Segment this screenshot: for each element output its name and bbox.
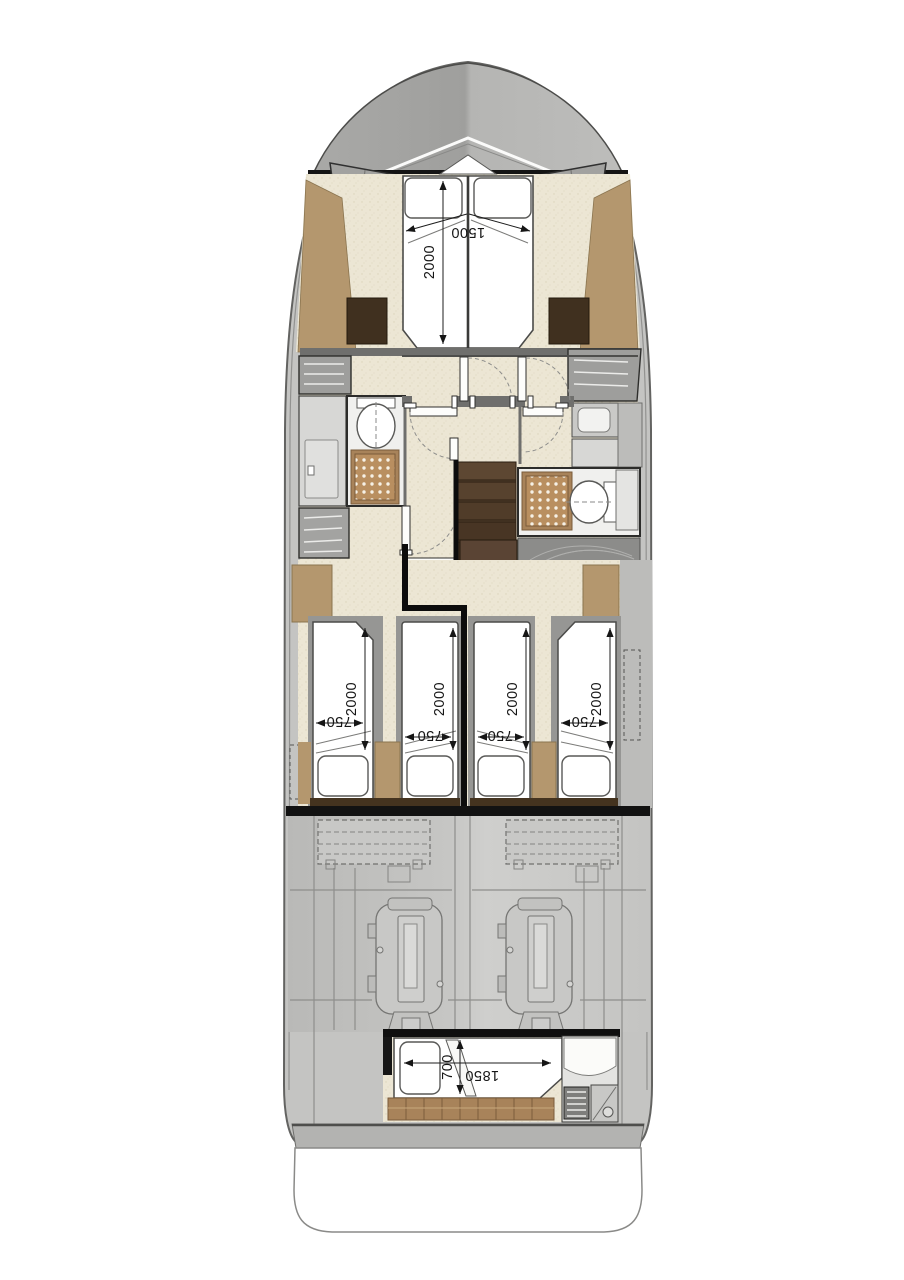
pillow-port [405, 178, 462, 218]
guest-bed-4-length-label: 2000 [589, 682, 605, 716]
port-bathroom [347, 396, 405, 506]
floor-plan-drawing: 1500 2000 [0, 0, 904, 1280]
starboard-bathroom [518, 468, 640, 536]
nightstand-port [347, 298, 387, 344]
crew-cabin: 700 1850 [383, 1029, 620, 1122]
guest-bed-2-length-label: 2000 [432, 682, 448, 716]
guest-bed-2-width-label: 750 [417, 727, 443, 743]
engine-room-bulkhead [286, 806, 650, 816]
guest-bed-1-length-label: 2000 [344, 682, 360, 716]
pillow-starboard [474, 178, 531, 218]
swim-platform [294, 1148, 642, 1232]
port-shower [299, 396, 346, 506]
owner-cabin: 1500 2000 [296, 155, 640, 352]
guest-bed-4-width-label: 750 [571, 713, 597, 729]
floor-plan-canvas: 1500 2000 [0, 0, 904, 1280]
guest-bed-1-width-label: 750 [326, 713, 352, 729]
guest-bed-3-width-label: 750 [487, 727, 513, 743]
owner-bed-length-label: 2000 [422, 245, 438, 279]
guest-bed-3 [474, 622, 530, 801]
port-wardrobe [299, 508, 349, 558]
transom [292, 1124, 644, 1148]
guest-cabins: 2000 750 2000 750 2000 750 2000 750 [290, 544, 652, 812]
crew-bed-length-label: 1850 [465, 1067, 499, 1083]
sideboard-starboard [583, 565, 619, 622]
owner-bed-width-label: 1500 [451, 224, 485, 240]
guest-bed-4 [558, 622, 616, 801]
fuel-tank-starboard [506, 820, 618, 869]
crew-head-compartment [562, 1036, 618, 1122]
nightstand-starboard [549, 298, 589, 344]
starboard-sink-cabinet [572, 403, 618, 437]
crew-bed-width-label: 700 [440, 1054, 456, 1080]
crew-pillow [400, 1042, 440, 1094]
side-deck-starboard [620, 560, 652, 808]
guest-bed-1 [313, 622, 373, 801]
corridor-cabinet [460, 540, 517, 562]
crew-teak-floor [388, 1098, 554, 1120]
guest-bed-3-length-label: 2000 [505, 682, 521, 716]
sideboard-port [292, 565, 332, 622]
stern [292, 1124, 644, 1232]
guest-bed-2 [402, 622, 458, 801]
port-window-locker [299, 356, 351, 394]
fuel-tank-port [318, 820, 430, 869]
